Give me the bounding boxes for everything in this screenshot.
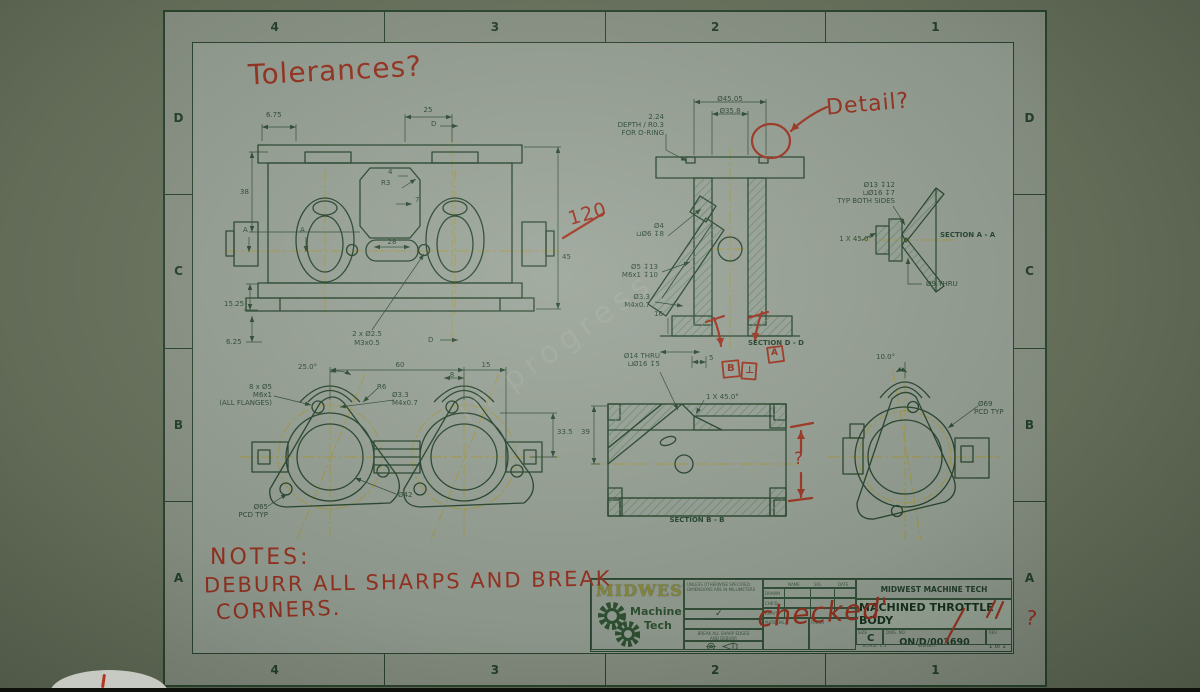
section-label: SECTION B - B [669,516,724,524]
callout-label: 2 x Ø2.5 [352,330,382,338]
dim-label: 16 [654,310,663,318]
callout-label: 2.24 [648,113,664,121]
dim-label: 6.25 [226,338,242,346]
dim-label: 33.5 [557,428,573,436]
callout-label: Ø3.3 [392,391,409,399]
callout-label: ⊔Ø16 ↧7 [863,189,895,197]
callout-label: R6 [377,383,386,391]
callout-label: DEPTH / R0.3 [618,121,664,129]
dim-label: 25.0° [298,363,317,371]
callout-label: Ø65 [254,503,268,511]
callout-label: (ALL FLANGES) [219,399,272,407]
handwritten-gdt-symbol: B [727,363,736,374]
dim-label: R3 [381,179,390,187]
callout-label: PCD TYP [974,408,1004,416]
photographed-engineering-drawing: 4 3 2 1 4 3 2 1 D C B A D C B A MIDWEST [0,0,1200,692]
dim-label: 6.75 [266,111,282,119]
dim-label: 25 [424,106,433,114]
callout-label: 1 X 45.0° [839,235,872,243]
dim-label: Ø35.8 [719,107,740,115]
section-label: SECTION D - D [748,339,804,347]
callout-label: Ø42 [398,491,412,499]
dim-label: 8 [450,371,454,379]
pointer-mark [101,674,106,688]
dim-label: 60 [396,361,405,369]
callout-label: 1 X 45.0° [706,393,739,401]
dim-label: 38 [240,188,249,196]
section-arrow-label: D [428,336,433,344]
callout-label: FOR O-RING [622,129,664,137]
callout-label: ⊔Ø16 ↧5 [628,360,660,368]
handwritten-notes-line: CORNERS. [216,596,342,624]
section-label: SECTION A - A [940,231,995,239]
callout-label: TYP BOTH SIDES [837,197,895,205]
screen-edge-bar [0,688,1200,692]
callout-label: M3x0.5 [354,339,380,347]
dim-label: 4 [388,168,392,176]
handwritten-gdt-symbol: ⊥ [745,365,755,376]
section-arrow-label: A [243,226,248,234]
handwritten-gdt-symbol: A [771,348,779,358]
callout-label: Ø9 THRU [926,280,958,288]
dim-label: 7 [415,196,419,204]
dim-label: 28 [388,238,397,246]
section-arrow-label: D [431,120,436,128]
callout-label: M4x0.7 [392,399,418,407]
dim-label: 10.0° [876,353,895,361]
dim-label: 15.25 [224,300,244,308]
callout-label: Ø4 [654,222,664,230]
callout-label: M6x1 [253,391,272,399]
dim-label: Ø45.05 [717,95,743,103]
section-arrow-label: A [300,226,305,234]
dim-label: 39 [581,428,590,436]
callout-label: ⊔Ø6 ↧8 [636,230,664,238]
dim-label: 45 [562,253,571,261]
handwritten-question-mark: ? [794,449,804,469]
callout-label: Ø69 [978,400,992,408]
dim-label: 5 [709,354,713,362]
callout-label: 8 x Ø5 [249,383,272,391]
dim-label: 15 [482,361,491,369]
callout-label: Ø13 ↧12 [864,181,895,189]
handwritten-notes-heading: NOTES: [210,545,311,570]
callout-label: Ø14 THRU [624,352,660,360]
callout-label: PCD TYP [239,511,269,519]
